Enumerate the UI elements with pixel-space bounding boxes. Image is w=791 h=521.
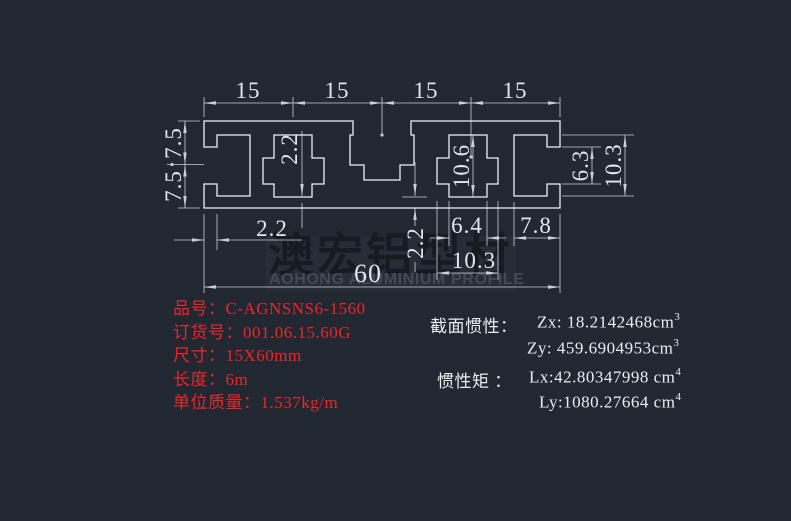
order-number-label: 订货号： (173, 323, 243, 342)
dim-slot-depth: 7.8 (520, 213, 552, 238)
profile-drawing: 15 15 15 15 7.5 7.5 6.3 10.3 2.2 10.6 2.… (0, 0, 791, 521)
dim-cavity-width: 10.3 (452, 248, 496, 273)
section-zy: Zy: 459.6904953cm3 (527, 338, 679, 359)
product-info: 品号：C-AGNSNS6-1560 订货号：001.06.15.60G 尺寸：1… (173, 297, 366, 415)
dim-width-2: 15 (325, 78, 350, 103)
length-value: 6m (226, 370, 249, 389)
cad-viewport[interactable]: 澳宏铝型材 AOHONG ALUMINIUM PROFILE (0, 0, 791, 521)
dim-bottom-wall: 2.2 (403, 227, 428, 259)
size-row: 尺寸：15X60mm (173, 344, 366, 368)
dim-width-1: 15 (236, 78, 261, 103)
dim-neck-width: 6.4 (451, 213, 483, 238)
dimension-lines (167, 97, 634, 293)
unit-weight-value: 1.537kg/m (261, 393, 339, 412)
dim-total-width: 60 (354, 259, 382, 288)
order-number-value: 001.06.15.60G (243, 323, 351, 342)
size-label: 尺寸： (173, 346, 226, 365)
unit-weight-row: 单位质量：1.537kg/m (173, 391, 366, 415)
ly-superscript: 4 (675, 391, 681, 403)
dim-height-lower: 7.5 (161, 170, 186, 202)
moment-label: 惯性矩 ： (437, 367, 512, 392)
dim-lip: 2.2 (256, 216, 288, 241)
product-number-value: C-AGNSNS6-1560 (226, 299, 366, 318)
size-value: 15X60mm (226, 346, 302, 365)
section-zx: Zx: 18.2142468cm3 (537, 312, 680, 333)
dim-slot-opening: 6.3 (568, 150, 593, 182)
moment-lx: Lx:42.80347998 cm4 (529, 367, 681, 388)
dim-width-4: 15 (503, 78, 528, 103)
length-label: 长度： (173, 370, 226, 389)
zx-superscript: 3 (674, 311, 680, 323)
moment-ly: Ly:1080.27664 cm4 (539, 392, 681, 413)
dim-top-wall: 2.2 (277, 133, 302, 165)
dim-cavity-height: 10.6 (449, 144, 474, 188)
product-number-label: 品号： (173, 299, 226, 318)
dim-slot-cavity-height: 10.3 (601, 143, 626, 187)
dimension-labels: 15 15 15 15 7.5 7.5 6.3 10.3 2.2 10.6 2.… (161, 78, 626, 288)
order-number-row: 订货号：001.06.15.60G (173, 321, 366, 345)
dim-width-3: 15 (414, 78, 439, 103)
unit-weight-label: 单位质量： (173, 393, 261, 412)
dim-height-upper: 7.5 (161, 127, 186, 159)
section-inertia-label: 截面惯性： (430, 312, 518, 337)
zy-superscript: 3 (673, 337, 679, 349)
length-row: 长度：6m (173, 368, 366, 392)
product-number-row: 品号：C-AGNSNS6-1560 (173, 297, 366, 321)
lx-superscript: 4 (675, 366, 681, 378)
